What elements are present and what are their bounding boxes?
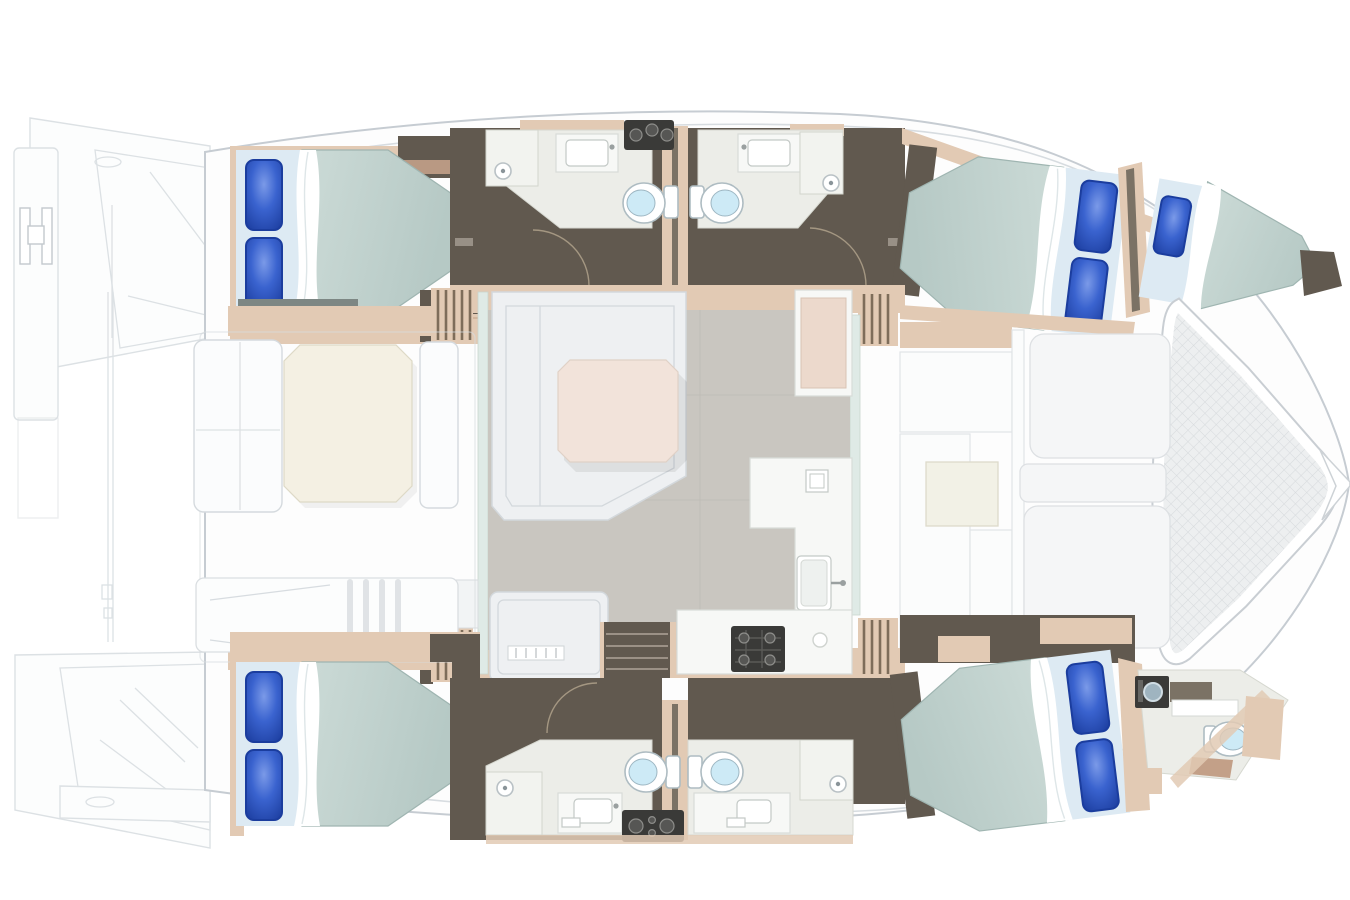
sink (1172, 700, 1238, 716)
cockpit-table (284, 345, 412, 502)
sunpad (1030, 334, 1170, 458)
starboard-forward-head (688, 740, 853, 835)
cockpit-bench-right (420, 342, 458, 508)
starboard-forward-cabin (890, 615, 1150, 840)
fridge (801, 298, 846, 388)
washer (1135, 676, 1169, 708)
companionway-stairs-starboard (600, 622, 676, 678)
toilet-fixture (690, 183, 743, 223)
toilet-fixture (625, 752, 680, 792)
salon-door-glass (478, 292, 488, 674)
louver-vent (858, 618, 898, 676)
louver-vent (858, 292, 898, 346)
shower (486, 130, 538, 186)
louver-vent (431, 288, 473, 342)
salon-bench (490, 592, 608, 682)
floorplan-canvas (0, 0, 1350, 900)
mast-step-box (926, 462, 998, 526)
toilet-fixture (623, 183, 678, 223)
stern-passerelle (14, 148, 58, 420)
shower (800, 740, 853, 800)
shower (486, 772, 542, 835)
stove (731, 626, 785, 672)
starboard-heads (450, 678, 905, 844)
helm-console (624, 120, 674, 150)
salon-table (558, 360, 678, 462)
toilet-fixture (688, 752, 743, 792)
bed-port-aft (236, 150, 452, 314)
foredeck (900, 322, 1170, 650)
salon (420, 285, 905, 684)
bed-starboard-aft (236, 662, 452, 826)
catamaran-floorplan (0, 0, 1350, 900)
cockpit-bench-left (194, 340, 282, 512)
aft-cockpit (194, 299, 475, 670)
